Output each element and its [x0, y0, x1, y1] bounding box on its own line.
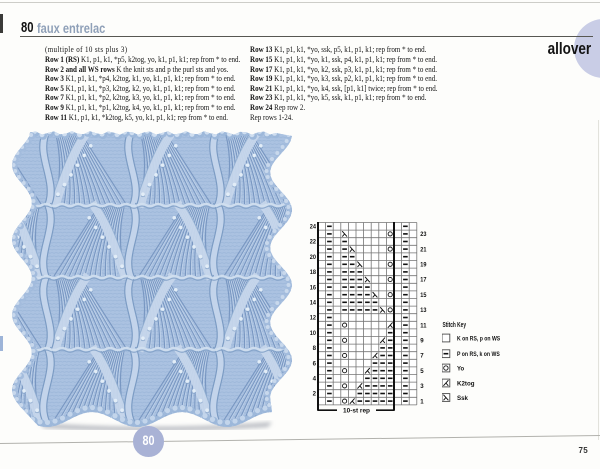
- svg-text:16: 16: [310, 284, 317, 291]
- svg-text:18: 18: [310, 269, 317, 276]
- svg-text:3: 3: [420, 383, 424, 390]
- svg-text:13: 13: [420, 307, 427, 314]
- svg-text:11: 11: [420, 322, 427, 329]
- svg-text:Ssk: Ssk: [457, 395, 468, 402]
- svg-text:20: 20: [310, 254, 317, 261]
- svg-text:15: 15: [420, 292, 427, 299]
- svg-text:10-st rep: 10-st rep: [343, 408, 370, 415]
- svg-text:Stitch Key: Stitch Key: [442, 322, 466, 329]
- svg-text:17: 17: [420, 277, 427, 284]
- svg-text:12: 12: [310, 315, 317, 322]
- svg-text:6: 6: [313, 360, 317, 367]
- svg-text:Yo: Yo: [457, 365, 464, 372]
- svg-text:K on RS, p on WS: K on RS, p on WS: [457, 335, 501, 342]
- svg-text:P on RS, k on WS: P on RS, k on WS: [457, 351, 500, 358]
- svg-text:2: 2: [313, 391, 317, 398]
- svg-text:7: 7: [420, 353, 424, 360]
- svg-text:1: 1: [420, 398, 424, 405]
- svg-text:24: 24: [310, 224, 317, 231]
- svg-text:K2tog: K2tog: [457, 380, 475, 387]
- svg-text:9: 9: [420, 338, 424, 345]
- svg-text:14: 14: [310, 300, 317, 307]
- svg-text:8: 8: [313, 345, 317, 352]
- svg-text:22: 22: [310, 239, 317, 246]
- svg-text:4: 4: [313, 376, 317, 383]
- svg-text:10: 10: [310, 330, 317, 337]
- svg-text:5: 5: [420, 368, 424, 375]
- svg-text:21: 21: [420, 246, 427, 253]
- svg-text:19: 19: [420, 262, 427, 269]
- svg-text:23: 23: [420, 231, 427, 238]
